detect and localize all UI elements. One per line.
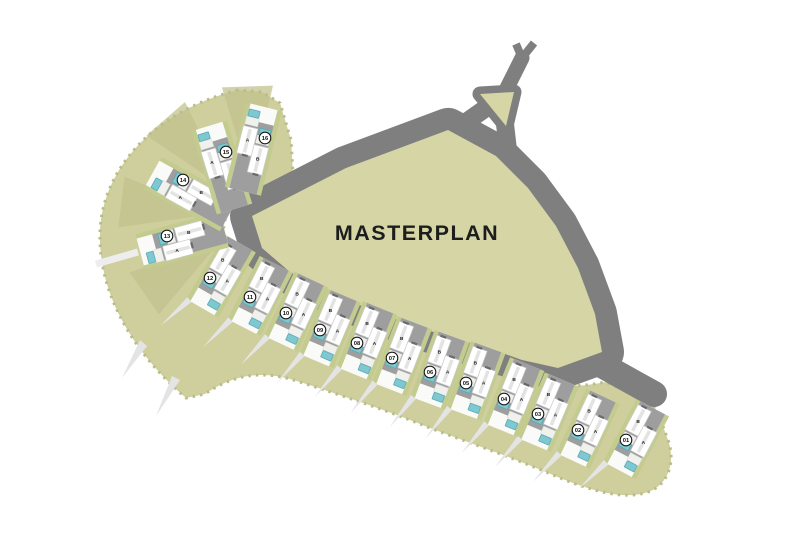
unit-label-b: B	[400, 336, 404, 342]
entrance-fork-right	[522, 43, 534, 58]
unit-label-a: A	[482, 381, 486, 387]
unit-label-a: A	[210, 160, 214, 166]
plot-badge-12[interactable]: 12	[204, 272, 216, 284]
plot-badge-05[interactable]: 05	[460, 377, 472, 389]
tree-spike	[156, 376, 180, 416]
plot-badge-02[interactable]: 02	[572, 424, 584, 436]
unit-label-a: A	[408, 356, 412, 362]
unit-label-a: A	[179, 195, 183, 201]
unit-label-b: B	[438, 350, 442, 356]
svg-text:09: 09	[317, 328, 324, 334]
svg-text:13: 13	[164, 234, 171, 240]
unit-label-a: A	[266, 297, 270, 303]
unit-label-b: B	[636, 419, 640, 425]
plot-badge-11[interactable]: 11	[244, 291, 256, 303]
plot-badge-10[interactable]: 10	[280, 307, 292, 319]
unit-label-b: B	[200, 190, 204, 196]
svg-text:05: 05	[463, 381, 470, 387]
unit-label-a: A	[175, 248, 179, 254]
plot-badge-16[interactable]: 16	[259, 132, 271, 144]
svg-text:07: 07	[389, 356, 395, 362]
svg-text:08: 08	[354, 341, 361, 347]
plot-badge-07[interactable]: 07	[386, 352, 398, 364]
unit-label-a: A	[302, 312, 306, 318]
unit-label-b: B	[547, 392, 551, 398]
unit-label-a: A	[554, 413, 558, 419]
tree-spike	[122, 340, 147, 378]
unit-label-a: A	[594, 429, 598, 435]
svg-text:02: 02	[575, 428, 581, 434]
svg-text:04: 04	[501, 397, 508, 403]
unit-label-a: A	[246, 137, 250, 143]
unit-label-b: B	[260, 276, 264, 282]
unit-label-b: B	[256, 156, 260, 162]
masterplan-title: MASTERPLAN	[335, 221, 499, 245]
svg-text:03: 03	[535, 412, 542, 418]
svg-text:01: 01	[623, 438, 630, 444]
svg-text:10: 10	[283, 311, 289, 317]
unit-label-b: B	[295, 292, 299, 298]
svg-text:14: 14	[180, 178, 187, 184]
plot-badge-13[interactable]: 13	[161, 230, 173, 242]
unit-label-a: A	[336, 329, 340, 335]
unit-label-a: A	[446, 370, 450, 376]
plot-badge-01[interactable]: 01	[620, 434, 632, 446]
plot-badge-09[interactable]: 09	[314, 324, 326, 336]
svg-text:16: 16	[262, 136, 269, 142]
unit-label-a: A	[226, 279, 230, 285]
unit-label-a: A	[642, 440, 646, 446]
masterplan-map: BA01BA02BA03BA04BA05BA06BA07BA08BA09BA10…	[0, 0, 802, 542]
svg-text:11: 11	[247, 295, 254, 301]
unit-label-a: A	[373, 341, 377, 347]
unit-label-b: B	[474, 361, 478, 367]
plot-badge-14[interactable]: 14	[177, 174, 189, 186]
plot-badge-15[interactable]: 15	[220, 146, 232, 158]
masterplan-canvas: BA01BA02BA03BA04BA05BA06BA07BA08BA09BA10…	[0, 0, 802, 542]
svg-text:15: 15	[223, 150, 230, 156]
svg-text:12: 12	[207, 276, 213, 282]
unit-label-b: B	[221, 258, 225, 264]
unit-label-b: B	[329, 308, 333, 314]
unit-label-b: B	[512, 377, 516, 383]
plot-badge-06[interactable]: 06	[424, 366, 436, 378]
unit-label-b: B	[365, 321, 369, 327]
plot-badge-03[interactable]: 03	[532, 408, 544, 420]
unit-label-b: B	[187, 230, 191, 236]
svg-text:06: 06	[427, 370, 434, 376]
unit-label-b: B	[587, 409, 591, 415]
plot-badge-04[interactable]: 04	[498, 393, 510, 405]
plot-badge-08[interactable]: 08	[351, 337, 363, 349]
unit-label-a: A	[520, 397, 524, 403]
